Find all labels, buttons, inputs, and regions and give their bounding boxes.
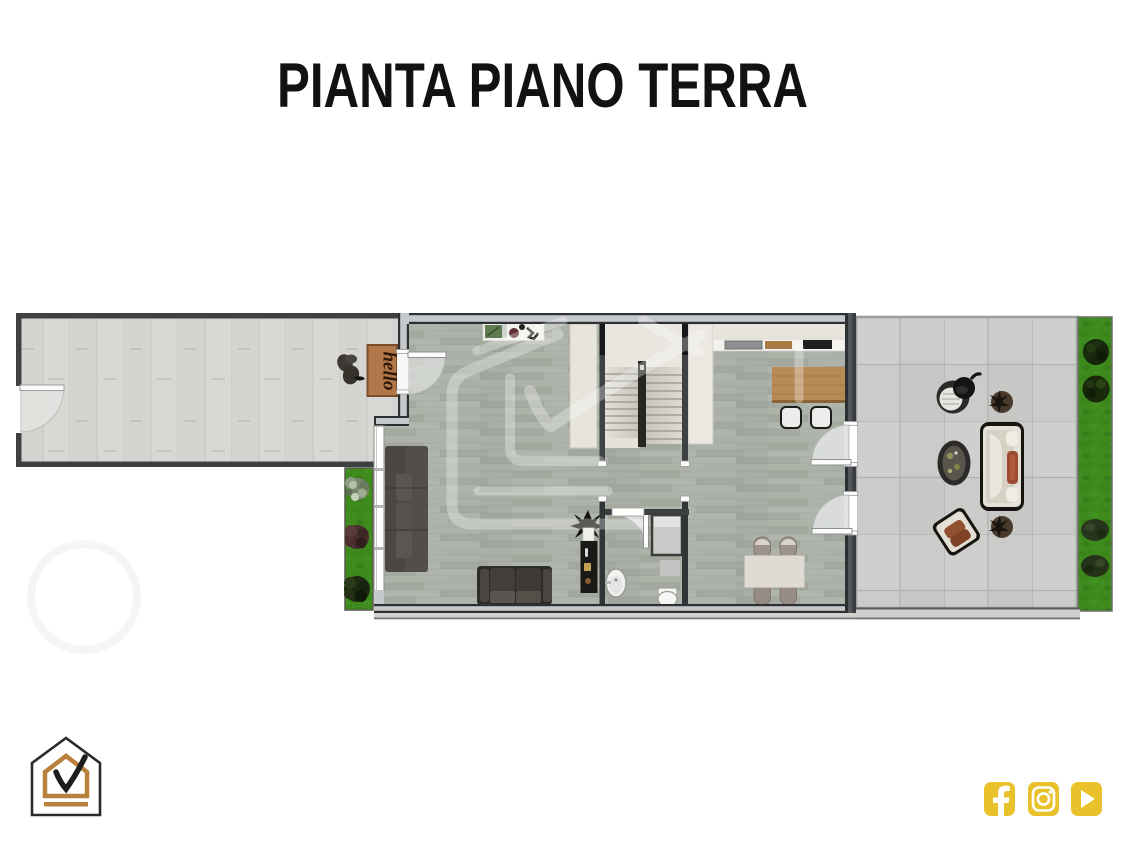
svg-text:PIANTA PIANO TERRA: PIANTA PIANO TERRA — [277, 51, 808, 121]
svg-text:hello: hello — [379, 351, 400, 390]
